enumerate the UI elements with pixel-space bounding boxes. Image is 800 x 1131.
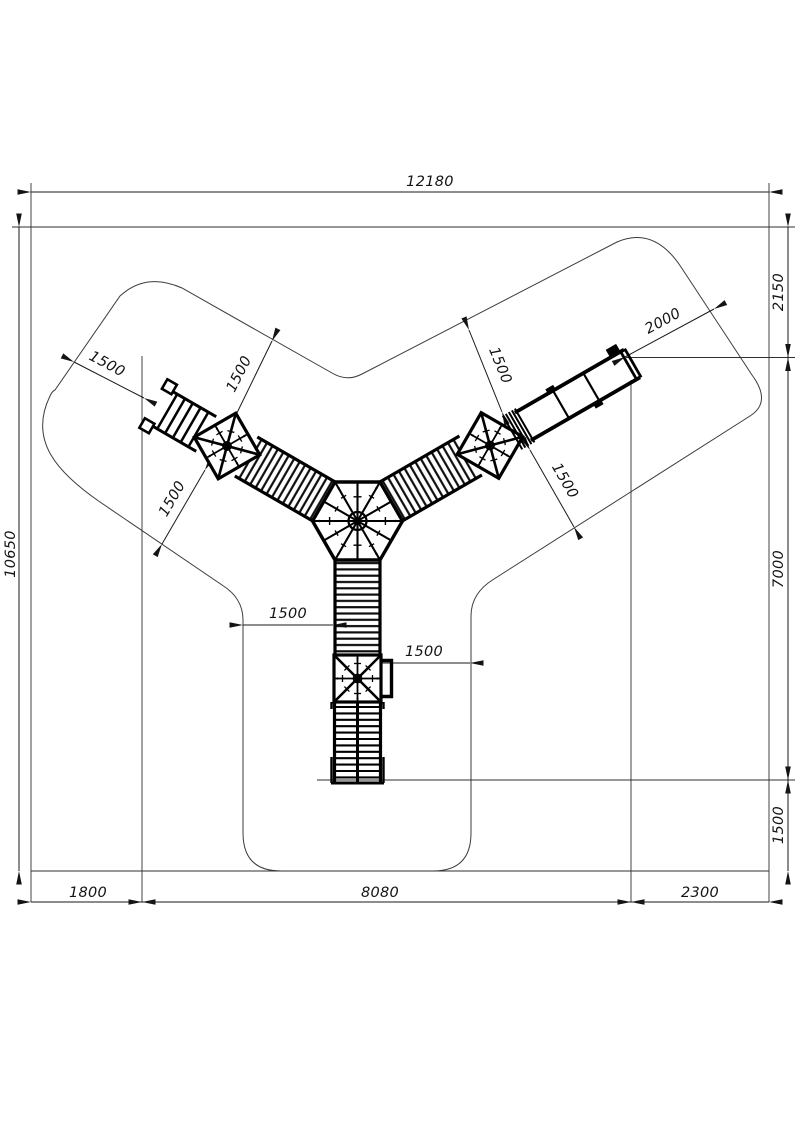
dim-right-top: 2150 — [771, 273, 787, 311]
dim-bottom-left: 1800 — [69, 885, 107, 901]
dim-bottom-arm-right: 1500 — [405, 644, 443, 660]
slide — [500, 341, 643, 450]
bottom-stairs — [331, 702, 384, 783]
dim-slide-clearance: 2000 — [643, 305, 684, 337]
bridge-bottom — [335, 557, 380, 656]
dim-right-arm-lower: 1500 — [548, 460, 581, 501]
playground-structure — [139, 341, 643, 783]
dimension-labels: 12180 10650 2150 7000 1500 1800 8080 230… — [3, 174, 787, 901]
extension-lines — [12, 183, 795, 902]
drawing-sheet: 12180 10650 2150 7000 1500 1800 8080 230… — [0, 0, 800, 1131]
dimension-lines — [19, 192, 788, 902]
dim-right-middle: 7000 — [771, 550, 787, 588]
plan-drawing: 12180 10650 2150 7000 1500 1800 8080 230… — [0, 0, 800, 1131]
dim-bottom-arm-left: 1500 — [269, 606, 307, 622]
dim-right-bottom: 1500 — [771, 806, 787, 844]
dim-left-arm-lower: 1500 — [156, 478, 189, 519]
dim-bottom-middle: 8080 — [361, 885, 399, 901]
dim-total-height: 10650 — [3, 530, 19, 578]
dim-ladder-clearance: 1500 — [86, 348, 127, 380]
tower-platform-bottom — [334, 655, 381, 702]
dim-left-arm-upper: 1500 — [224, 354, 256, 395]
dim-bottom-right: 2300 — [681, 885, 719, 901]
dim-total-width: 12180 — [406, 174, 454, 190]
